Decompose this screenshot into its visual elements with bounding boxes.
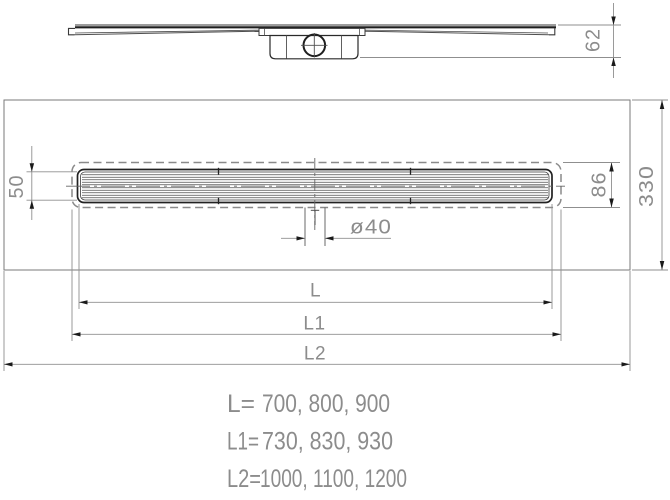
dim62-arrow-up-icon bbox=[611, 58, 616, 67]
size-row-L-label: L= bbox=[227, 390, 255, 418]
dim86-value: 86 bbox=[588, 172, 610, 198]
size-row-L: L= 700, 800, 900 bbox=[227, 390, 390, 418]
size-row-L2: L2= 1000, 1100, 1200 bbox=[227, 465, 407, 493]
dimL-arrow-left-icon bbox=[79, 300, 88, 304]
dim330-arrow-down-icon bbox=[660, 261, 665, 270]
dimension-membrane-width: 330 bbox=[632, 100, 668, 270]
dimension-length-L1: L1 bbox=[72, 210, 561, 342]
dim50-arrow-up-icon bbox=[30, 200, 34, 209]
dimL2-arrow-right-icon bbox=[622, 362, 631, 366]
plan-view bbox=[4, 100, 630, 270]
dimL1-arrow-left-icon bbox=[72, 332, 81, 336]
dim86-arrow-up-icon bbox=[609, 163, 614, 172]
size-row-L2-values: 1000, 1100, 1200 bbox=[260, 465, 407, 493]
size-row-L1-label: L1= bbox=[227, 428, 259, 456]
technical-drawing-page: 62 bbox=[0, 0, 670, 500]
dimL-label: L bbox=[310, 281, 321, 302]
side-view bbox=[69, 25, 557, 59]
dim40-arrow-right-icon bbox=[297, 236, 306, 240]
dim330-value: 330 bbox=[636, 165, 658, 207]
size-row-L-values: 700, 800, 900 bbox=[262, 390, 390, 418]
size-row-L1: L1= 730, 830, 930 bbox=[227, 428, 393, 456]
dim50-arrow-down-icon bbox=[30, 163, 34, 172]
side-left-end-cap bbox=[69, 28, 76, 34]
dim62-value: 62 bbox=[582, 28, 604, 52]
size-table: L= 700, 800, 900 L1= 730, 830, 930 L2= 1… bbox=[227, 390, 407, 493]
dim86-arrow-down-icon bbox=[609, 199, 614, 208]
dimension-channel-width: 50 bbox=[6, 146, 77, 220]
size-row-L1-values: 730, 830, 930 bbox=[262, 428, 393, 456]
dimL1-arrow-right-icon bbox=[553, 332, 562, 336]
dimension-outlet-diameter: ø40 bbox=[281, 217, 392, 241]
dimL2-arrow-left-icon bbox=[4, 362, 13, 366]
dim40-arrow-left-icon bbox=[325, 236, 334, 240]
side-right-end-cap bbox=[549, 28, 555, 34]
drain-technical-drawing: 62 bbox=[0, 0, 670, 500]
dimL-arrow-right-icon bbox=[544, 300, 553, 304]
dimension-flange-width: 86 bbox=[563, 163, 620, 208]
dimL2-label: L2 bbox=[304, 344, 326, 365]
dim330-arrow-up-icon bbox=[660, 100, 665, 109]
dim40-value: ø40 bbox=[350, 217, 392, 239]
dimension-side-height: 62 bbox=[360, 3, 621, 78]
dimL1-label: L1 bbox=[303, 314, 325, 335]
dim50-value: 50 bbox=[6, 175, 28, 199]
dim62-arrow-down-icon bbox=[611, 17, 616, 26]
size-row-L2-label: L2= bbox=[227, 465, 261, 493]
